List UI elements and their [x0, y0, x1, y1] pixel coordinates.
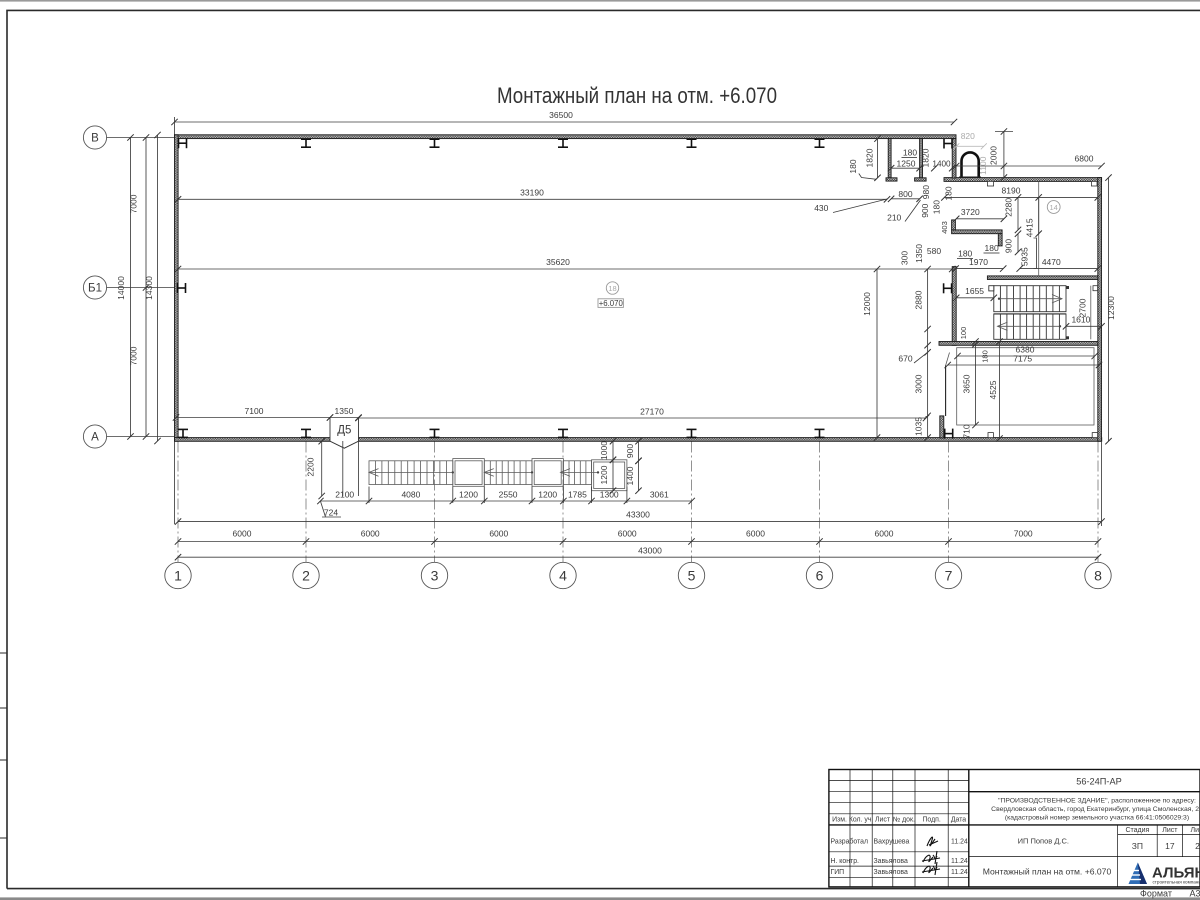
svg-text:Монтажный план на отм. +6.070: Монтажный план на отм. +6.070: [983, 867, 1112, 877]
svg-text:А3: А3: [1189, 888, 1200, 898]
svg-text:43300: 43300: [626, 509, 650, 519]
svg-text:5: 5: [688, 567, 696, 583]
svg-text:1: 1: [174, 567, 182, 583]
svg-text:180: 180: [903, 147, 917, 157]
svg-text:7000: 7000: [129, 194, 139, 213]
svg-text:6000: 6000: [233, 529, 252, 539]
svg-text:300: 300: [900, 251, 910, 265]
svg-text:Завьялова: Завьялова: [874, 869, 908, 876]
svg-text:12300: 12300: [1106, 296, 1116, 320]
svg-text:900: 900: [1004, 239, 1014, 253]
svg-text:Н. контр.: Н. контр.: [831, 858, 860, 865]
svg-text:ГИП: ГИП: [831, 869, 845, 876]
svg-text:1000: 1000: [599, 441, 609, 460]
svg-text:Дата: Дата: [951, 817, 966, 824]
svg-text:43000: 43000: [638, 546, 662, 556]
svg-text:724: 724: [324, 508, 338, 518]
svg-text:+6.070: +6.070: [599, 299, 624, 308]
svg-text:1035: 1035: [914, 417, 924, 436]
svg-text:Д5: Д5: [337, 425, 351, 437]
svg-text:Лист: Лист: [875, 817, 891, 824]
svg-text:100: 100: [959, 327, 968, 340]
svg-text:6000: 6000: [875, 529, 894, 539]
svg-text:строительная компания: строительная компания: [1153, 880, 1200, 885]
svg-text:14: 14: [1050, 203, 1058, 212]
svg-text:6: 6: [816, 567, 824, 583]
svg-text:Кол. уч.: Кол. уч.: [849, 817, 874, 824]
svg-text:3061: 3061: [650, 489, 669, 499]
svg-text:180: 180: [943, 186, 953, 200]
svg-text:Б1: Б1: [88, 283, 102, 295]
svg-text:1250: 1250: [897, 158, 916, 168]
svg-text:180: 180: [932, 200, 942, 214]
svg-text:ИП Попов Д.С.: ИП Попов Д.С.: [1018, 836, 1069, 845]
svg-text:6800: 6800: [1075, 154, 1094, 164]
svg-text:3000: 3000: [914, 374, 924, 393]
svg-text:1200: 1200: [538, 489, 557, 499]
svg-text:670: 670: [898, 354, 912, 364]
svg-text:Свердловская область, город Ек: Свердловская область, город Екатеринбург…: [991, 805, 1200, 813]
svg-text:1200: 1200: [459, 489, 478, 499]
svg-text:36500: 36500: [549, 110, 573, 120]
svg-text:1655: 1655: [965, 286, 984, 296]
svg-text:180: 180: [848, 159, 858, 173]
svg-text:А: А: [91, 432, 99, 444]
svg-text:33190: 33190: [520, 188, 544, 198]
svg-text:180: 180: [981, 350, 990, 363]
svg-text:2200: 2200: [305, 457, 315, 476]
svg-text:1350: 1350: [914, 244, 924, 263]
svg-text:5935: 5935: [1020, 247, 1030, 266]
svg-text:(кадастровый номер земельного: (кадастровый номер земельного участка 66…: [1005, 814, 1189, 822]
svg-text:11.24: 11.24: [951, 858, 968, 865]
svg-text:800: 800: [898, 189, 912, 199]
svg-text:12000: 12000: [862, 292, 872, 316]
svg-text:3: 3: [431, 567, 439, 583]
svg-text:3650: 3650: [961, 374, 971, 393]
svg-text:4415: 4415: [1024, 218, 1034, 237]
svg-text:1610: 1610: [1071, 315, 1090, 325]
svg-text:2: 2: [302, 567, 310, 583]
svg-text:8: 8: [1094, 567, 1102, 583]
svg-text:ЗП: ЗП: [1132, 841, 1143, 851]
svg-text:Лист: Лист: [1162, 827, 1178, 834]
svg-text:4080: 4080: [401, 489, 420, 499]
svg-text:Завьялова: Завьялова: [874, 858, 908, 865]
svg-text:Формат: Формат: [1140, 888, 1172, 898]
svg-text:1970: 1970: [969, 257, 988, 267]
svg-text:7100: 7100: [245, 406, 264, 416]
svg-text:430: 430: [814, 203, 828, 213]
svg-text:1100: 1100: [978, 156, 988, 175]
svg-text:"ПРОИЗВОДСТВЕННОЕ ЗДАНИЕ", рас: "ПРОИЗВОДСТВЕННОЕ ЗДАНИЕ", расположенное…: [998, 798, 1196, 805]
svg-text:14300: 14300: [144, 276, 154, 300]
svg-text:980: 980: [921, 185, 931, 199]
svg-text:7000: 7000: [129, 346, 139, 365]
svg-text:1400: 1400: [625, 466, 635, 485]
svg-text:2880: 2880: [914, 290, 924, 309]
svg-text:820: 820: [961, 131, 975, 141]
svg-text:17: 17: [1165, 841, 1175, 851]
svg-text:580: 580: [927, 246, 941, 256]
svg-text:6000: 6000: [361, 529, 380, 539]
svg-text:1820: 1820: [921, 148, 931, 167]
svg-text:6000: 6000: [746, 529, 765, 539]
svg-text:900: 900: [920, 203, 930, 217]
svg-text:В: В: [91, 133, 99, 145]
svg-text:27170: 27170: [640, 406, 664, 416]
svg-text:№ док.: № док.: [893, 817, 915, 824]
svg-text:18: 18: [608, 284, 616, 293]
svg-text:1785: 1785: [568, 489, 587, 499]
svg-text:3720: 3720: [961, 207, 980, 217]
svg-text:1350: 1350: [335, 406, 354, 416]
svg-text:Монтажный план на отм. +6.070: Монтажный план на отм. +6.070: [497, 83, 777, 108]
svg-text:1820: 1820: [865, 148, 875, 167]
svg-text:56-24П-АР: 56-24П-АР: [1076, 776, 1121, 786]
svg-text:6000: 6000: [618, 529, 637, 539]
svg-text:Разработал: Разработал: [831, 838, 869, 846]
svg-text:210: 210: [887, 213, 901, 223]
svg-text:900: 900: [625, 444, 635, 458]
svg-text:7175: 7175: [1013, 354, 1032, 364]
svg-text:2: 2: [1195, 841, 1200, 851]
svg-text:4525: 4525: [988, 380, 998, 399]
svg-text:Стадия: Стадия: [1125, 827, 1149, 834]
svg-text:4470: 4470: [1042, 257, 1061, 267]
svg-text:35620: 35620: [546, 257, 570, 267]
svg-text:Изм.: Изм.: [832, 817, 847, 824]
svg-text:1200: 1200: [599, 465, 609, 484]
svg-text:2280: 2280: [1004, 198, 1014, 217]
svg-text:2000: 2000: [989, 146, 999, 165]
svg-text:11.24: 11.24: [951, 839, 968, 846]
svg-text:2100: 2100: [335, 489, 354, 499]
svg-text:7: 7: [945, 567, 953, 583]
svg-text:710: 710: [961, 424, 971, 438]
svg-text:7000: 7000: [1014, 529, 1033, 539]
svg-text:180: 180: [985, 243, 999, 253]
svg-text:8190: 8190: [1002, 186, 1021, 196]
svg-text:Вахрушева: Вахрушева: [874, 839, 910, 846]
svg-text:2550: 2550: [499, 489, 518, 499]
svg-text:Лис: Лис: [1190, 827, 1200, 834]
svg-text:Подп.: Подп.: [922, 817, 940, 824]
svg-text:14000: 14000: [116, 276, 126, 300]
svg-text:11.24: 11.24: [951, 869, 968, 876]
svg-text:4: 4: [559, 567, 567, 583]
svg-text:6000: 6000: [489, 529, 508, 539]
svg-text:1300: 1300: [600, 489, 619, 499]
svg-text:403: 403: [940, 221, 949, 234]
